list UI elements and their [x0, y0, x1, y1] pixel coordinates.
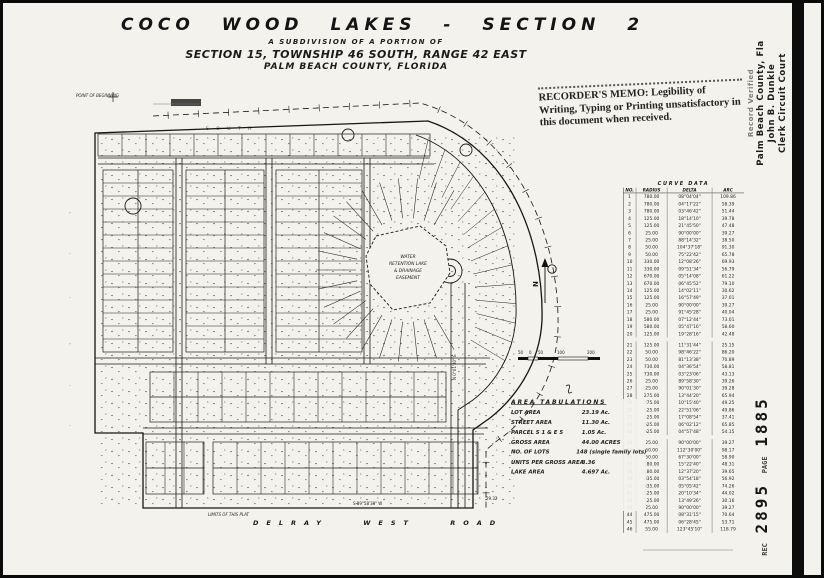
curve-row: 4655.00123°45'10"118.79: [624, 526, 744, 533]
curve-row: 1625.0090°00'00"39.27: [624, 301, 744, 308]
curve-row: 4125.0018°14'10"39.78: [624, 215, 744, 222]
curve-row: 2250.0098°46'22"86.20: [624, 349, 744, 356]
page-label: PAGE: [761, 456, 769, 473]
curve-row: 2625.0089°58'30"39.26: [624, 377, 744, 384]
squiggle-mark: [566, 385, 572, 393]
curve-row: 12670.0005°14'08"61.22: [624, 273, 744, 280]
limits-label: LIMITS OF THIS PLAT: [208, 512, 250, 517]
curve-row: 1725.0091°45'28"40.04: [624, 309, 744, 316]
curve-row: 2350.0081°13'38"70.89: [624, 356, 744, 363]
page-number: 1885: [752, 396, 771, 447]
bearing-right: N 0°01'30" E: [452, 354, 457, 380]
svg-text:50: 50: [538, 350, 544, 355]
binding-bar: [792, 3, 804, 578]
rec-label: REC: [761, 543, 769, 556]
plat-document-page: COCO WOOD LAKES - SECTION 2 A SUBDIVISIO…: [0, 0, 824, 578]
stamp-clerk-name: John B. Dunkle: [767, 18, 777, 188]
stamp-record-verified: Record Verified: [747, 18, 755, 188]
graphic-scale-bar: 50 0 50 100 200: [518, 350, 600, 360]
clerk-stamp-vertical: Record Verified Palm Beach County, Fla J…: [747, 18, 793, 188]
svg-text:EASEMENT: EASEMENT: [396, 275, 420, 281]
book-number: 2895: [752, 483, 771, 534]
svg-text:N: N: [532, 281, 540, 287]
curve-row: 11330.0009°51'34"56.79: [624, 265, 744, 272]
svg-text:,: ,: [69, 208, 71, 215]
svg-text:,: ,: [69, 339, 71, 346]
south-label: S O U T H: [206, 126, 255, 132]
svg-text:·: ·: [69, 251, 71, 258]
curve-row: 14125.0014°02'11"30.62: [624, 287, 744, 294]
svg-text:RETENTION LAKE: RETENTION LAKE: [389, 261, 427, 267]
road-label: DELRAY WEST ROAD: [253, 519, 503, 527]
curve-row: 25730.0003°23'06"43.13: [624, 370, 744, 377]
book-page-stamp: REC 2895 PAGE 1885: [752, 386, 774, 566]
svg-text:50: 50: [518, 350, 524, 355]
plat-map: WATER RETENTION LAKE & DRAINAGE EASEMENT…: [58, 88, 623, 568]
curve-row: 10330.0012°08'26"69.93: [624, 258, 744, 265]
curve-row: 5125.0021°45'50"47.48: [624, 222, 744, 229]
plat-text-texture: [98, 132, 516, 508]
curve-row: 950.0075°22'42"65.78: [624, 251, 744, 258]
curve-row: 13670.0006°45'52"79.10: [624, 280, 744, 287]
svg-text:100: 100: [557, 350, 565, 355]
fold-mark: [153, 103, 199, 105]
stamp-county: Palm Beach County, Fla: [756, 18, 766, 188]
curve-row: 24730.0004°36'54"58.81: [624, 363, 744, 370]
curve-row: 20125.0019°28'16"42.48: [624, 330, 744, 337]
curve-row: 15125.0016°57'49"37.01: [624, 294, 744, 301]
curve-row: 725.0088°14'32"38.50: [624, 237, 744, 244]
plat-subtitle-3: PALM BEACH COUNTY, FLORIDA: [121, 62, 591, 72]
fold-mark: [643, 549, 733, 551]
margin-dots: ,·· ,··: [69, 208, 71, 430]
curve-row: 18580.0007°12'44"73.01: [624, 316, 744, 323]
curve-row: 19580.0005°47'16"58.60: [624, 323, 744, 330]
curve-row: 1780.0008°04'04"109.86: [624, 193, 744, 200]
curve-row: 2780.0004°17'22"58.39: [624, 200, 744, 207]
svg-text:& DRAINAGE: & DRAINAGE: [394, 268, 422, 274]
svg-text:·: ·: [69, 295, 71, 302]
stamp-clerk-title: Clerk Circuit Court: [778, 18, 788, 188]
plat-title: COCO WOOD LAKES - SECTION 2: [121, 15, 591, 35]
curve-row: 21125.0011°31'44"25.15: [624, 341, 744, 348]
svg-text:WATER: WATER: [400, 254, 415, 260]
north-arrow-icon: N: [532, 258, 556, 303]
svg-text:·: ·: [69, 423, 71, 430]
curve-row: 2725.0090°01'30"39.28: [624, 385, 744, 392]
plat-subtitle-2: SECTION 15, TOWNSHIP 46 SOUTH, RANGE 42 …: [121, 48, 591, 61]
curve-table-title: CURVE DATA: [623, 181, 744, 187]
curve-row: 45475.0006°28'45"53.71: [624, 518, 744, 525]
svg-text:·: ·: [69, 383, 71, 390]
corner-dimension: 29.32: [486, 496, 498, 501]
curve-row: 44475.0008°31'15"70.64: [624, 511, 744, 518]
title-block: COCO WOOD LAKES - SECTION 2 A SUBDIVISIO…: [121, 15, 591, 72]
curve-row: 850.00104°37'18"91.30: [624, 244, 744, 251]
curve-row: 625.0090°00'00"39.27: [624, 229, 744, 236]
svg-text:0: 0: [529, 350, 532, 355]
plat-subtitle-1: A SUBDIVISION OF A PORTION OF: [121, 38, 591, 46]
svg-text:200: 200: [587, 350, 595, 355]
bearing-bottom: S 89°58'30" W: [353, 501, 382, 506]
curve-row: 3780.0003°46'42"51.44: [624, 208, 744, 215]
